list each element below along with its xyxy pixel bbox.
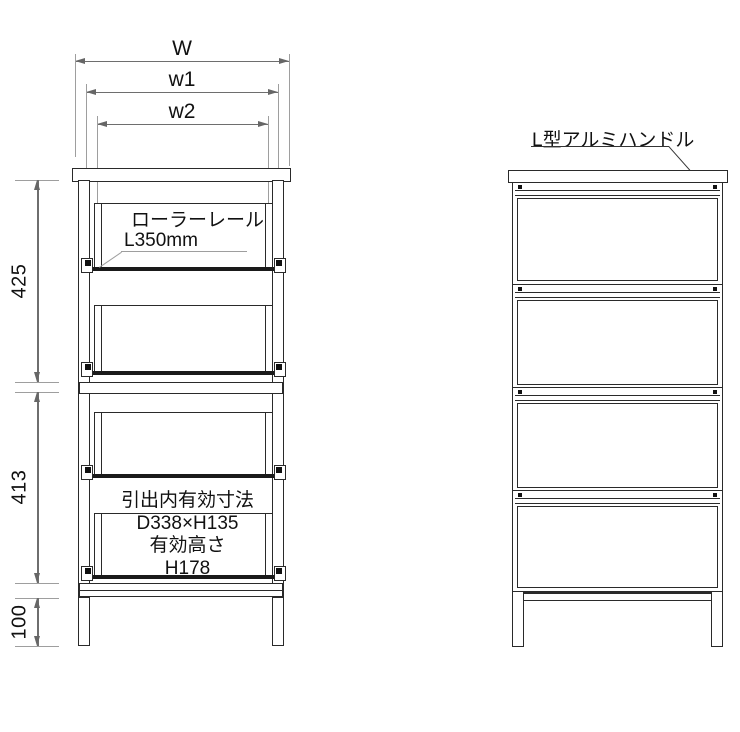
- side-right-leg: [711, 591, 723, 647]
- arrow-up-icon: [34, 598, 40, 608]
- extension-line: [86, 84, 87, 168]
- roller-bracket: [274, 566, 286, 581]
- roller-icon: [276, 568, 282, 574]
- front-middle-shelf: [79, 382, 283, 394]
- drawer-bottom-line: [93, 371, 274, 375]
- dimension-label-w2: w2: [169, 100, 196, 124]
- extension-line: [268, 116, 269, 204]
- dimension-label-425: 425: [9, 264, 32, 299]
- drawer-front-3: [513, 387, 722, 491]
- front-right-leg: [272, 597, 284, 646]
- dimension-line-w2: [97, 124, 268, 125]
- front-top-panel: [72, 168, 291, 182]
- handle-mount-dot: [518, 493, 522, 497]
- handle-mount-dot: [713, 390, 717, 394]
- arrow-up-icon: [34, 392, 40, 402]
- drawer-side-rail: [94, 306, 102, 372]
- l-handle-bar: [515, 498, 720, 504]
- arrow-right-icon: [268, 89, 278, 95]
- drawer-note-line2: D338×H135: [105, 513, 270, 536]
- handle-mount-dot: [518, 390, 522, 394]
- drawer-inner-dims-note: 引出内有効寸法 D338×H135 有効高さ H178: [105, 490, 270, 580]
- drawer-bottom-line: [93, 267, 274, 271]
- arrow-left-icon: [75, 58, 85, 64]
- technical-drawing: W w1 w2 425 413: [0, 0, 740, 732]
- dimension-label-w: W: [172, 37, 192, 61]
- roller-bracket: [81, 362, 93, 377]
- note-underline: [121, 251, 247, 252]
- drawer-face-panel: [517, 403, 718, 488]
- drawer-face-panel: [517, 300, 718, 385]
- drawer-side-rail: [265, 306, 273, 372]
- arrow-left-icon: [86, 89, 96, 95]
- drawer-side-rail: [94, 204, 102, 268]
- arrow-down-icon: [34, 372, 40, 382]
- arrow-right-icon: [279, 58, 289, 64]
- roller-bracket: [81, 258, 93, 273]
- l-handle-bar: [515, 190, 720, 196]
- arrow-down-icon: [34, 636, 40, 646]
- drawer-front-2: [513, 284, 722, 388]
- dimension-line-413: [37, 392, 38, 583]
- dimension-label-w1: w1: [169, 68, 196, 92]
- roller-bracket: [81, 566, 93, 581]
- drawer-face-panel: [517, 506, 718, 588]
- side-bottom-rail: [524, 592, 711, 601]
- drawer-note-line1: 引出内有効寸法: [105, 490, 270, 513]
- dimension-label-100: 100: [9, 605, 32, 640]
- roller-icon: [85, 568, 91, 574]
- handle-mount-dot: [713, 287, 717, 291]
- drawer-side-rail: [94, 514, 102, 576]
- extension-line: [75, 54, 76, 157]
- drawer-front-4: [513, 490, 722, 591]
- l-handle-bar: [515, 292, 720, 298]
- roller-bracket: [274, 362, 286, 377]
- roller-icon: [85, 364, 91, 370]
- roller-icon: [276, 467, 282, 473]
- side-top-panel: [508, 170, 728, 183]
- dimension-line-w1: [86, 92, 278, 93]
- roller-bracket: [274, 258, 286, 273]
- roller-icon: [85, 260, 91, 266]
- note-underline: [531, 146, 669, 147]
- handle-mount-dot: [713, 493, 717, 497]
- drawer-3: [94, 412, 273, 478]
- roller-rail-note-line2: L350mm: [124, 230, 198, 252]
- handle-mount-dot: [518, 287, 522, 291]
- front-bottom-shelf: [79, 583, 283, 597]
- arrow-left-icon: [97, 121, 107, 127]
- l-handle-bar: [515, 395, 720, 401]
- roller-bracket: [81, 465, 93, 480]
- roller-icon: [85, 467, 91, 473]
- front-left-leg: [78, 597, 90, 646]
- dimension-line-425: [37, 180, 38, 382]
- handle-mount-dot: [518, 185, 522, 189]
- drawer-note-line3: 有効高さ: [105, 535, 270, 558]
- extension-line: [97, 116, 98, 204]
- roller-bracket: [274, 465, 286, 480]
- drawer-side-rail: [265, 413, 273, 475]
- dimension-label-413: 413: [9, 470, 32, 505]
- side-left-leg: [512, 591, 524, 647]
- drawer-note-line4: H178: [105, 558, 270, 581]
- drawer-bottom-line: [93, 474, 274, 478]
- extension-line: [289, 54, 290, 166]
- drawer-2: [94, 305, 273, 375]
- roller-icon: [276, 364, 282, 370]
- arrow-down-icon: [34, 573, 40, 583]
- shelf-inner-line: [80, 590, 282, 591]
- drawer-face-panel: [517, 198, 718, 281]
- drawer-side-rail: [265, 204, 273, 268]
- roller-icon: [276, 260, 282, 266]
- side-body: [512, 182, 723, 592]
- drawer-front-1: [513, 183, 722, 284]
- handle-mount-dot: [713, 185, 717, 189]
- roller-rail-note-line1: ローラーレール: [131, 205, 264, 232]
- dimension-line-w: [75, 61, 289, 62]
- drawer-side-rail: [94, 413, 102, 475]
- arrow-up-icon: [34, 180, 40, 190]
- arrow-right-icon: [258, 121, 268, 127]
